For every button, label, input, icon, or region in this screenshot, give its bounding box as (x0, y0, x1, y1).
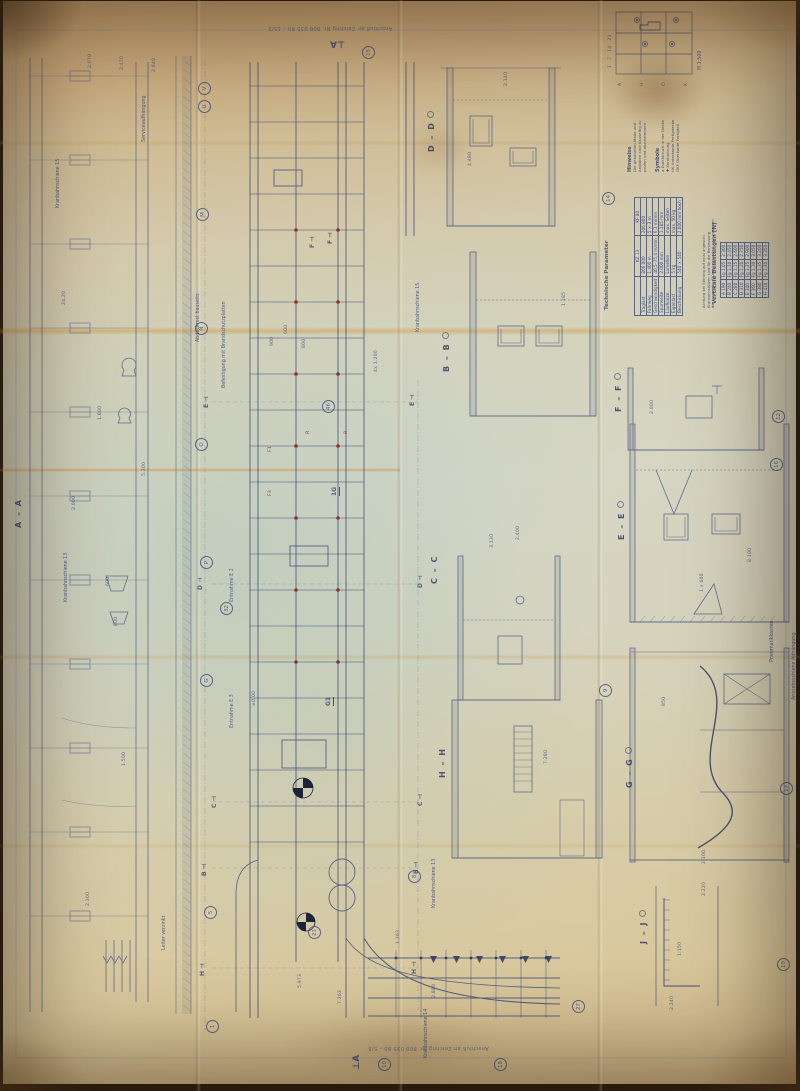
table-cell: 2.750 (739, 242, 745, 259)
hinweise-lines: Die genannten Maße undAngaben sind bause… (633, 124, 648, 172)
row: A 190Fg 1,052.300 (721, 242, 727, 297)
symbole-block: Symbole ⌀ Durchbruch in der Decke✚ Kernb… (654, 124, 682, 172)
photographed-blueprint: A – AD – DB – BC – CH – HF – FE – EG – G… (0, 0, 800, 1091)
table-cell: Beschickung (677, 276, 683, 315)
key-plan-numbers: 1 7 14 21 (608, 34, 613, 68)
linework (336, 516, 340, 520)
table-cell: 2.450 (727, 242, 733, 259)
linework (294, 660, 298, 664)
row: C 280Fg 1,152.600 (733, 242, 739, 297)
table-cell: 2.600 (733, 242, 739, 259)
linework (294, 444, 298, 448)
linework (395, 957, 398, 960)
linework (336, 300, 340, 304)
load-table-box: A 190Fg 1,052.300B 240Fg 1,102.450C 280F… (720, 232, 782, 298)
table-cell: Fg 1,30 (751, 259, 757, 280)
table-cell: Fg 1,05 (721, 259, 727, 280)
linework (294, 588, 298, 592)
linework (420, 957, 423, 960)
row: B 240Fg 1,102.450 (727, 242, 733, 297)
table-cell: E 340 (745, 280, 751, 298)
table-cell: Fg 1,25 (745, 259, 751, 280)
linework (294, 372, 298, 376)
linework (336, 372, 340, 376)
row: LaufkatzeLamellenmax. Seiten (665, 198, 671, 316)
row: Fahrweg1.400 m5 × 3 m (647, 198, 653, 316)
table-cell: 3.050 (751, 242, 757, 259)
row: F 360Fg 1,303.050 (751, 242, 757, 297)
row: Spurweite2.000 mm1.185 mm (659, 198, 665, 316)
linework (470, 957, 473, 960)
table-cell: D 310 (739, 280, 745, 298)
table-cell: 2.000 mm hoch (677, 198, 683, 236)
table-cell: F 360 (751, 280, 757, 298)
table-cell: Fg 1,10 (727, 259, 733, 280)
linework (760, 616, 765, 622)
table-cell: Fg 1,20 (739, 259, 745, 280)
linework (740, 616, 745, 622)
hinweise-block: Hinweise Die genannten Maße undAngaben s… (626, 124, 654, 172)
plan-strip (205, 60, 560, 1030)
row: D 310Fg 1,202.750 (739, 242, 745, 297)
linework (294, 300, 298, 304)
linework (770, 616, 775, 622)
linework (430, 956, 437, 963)
linework (336, 228, 340, 232)
vertical-loads-table: A 190Fg 1,052.300B 240Fg 1,102.450C 280F… (720, 242, 769, 298)
linework (750, 616, 755, 622)
table-cell: C 280 (733, 280, 739, 298)
symbole-item: OKF Oberkante Fertigteil (676, 124, 681, 172)
linework (670, 616, 675, 622)
symbole-items: ⌀ Durchbruch in der Decke✚ KernbohrungUK… (661, 124, 681, 172)
linework (499, 956, 506, 963)
connection-note-bottom: Anschluß an Zeichng Nr. 800 035 80 – 5/8 (368, 1044, 489, 1050)
table-cell: 3.350 (763, 242, 769, 259)
table-cell: 540 × 540 (677, 236, 683, 276)
row: H 410Fg 1,403.350 (763, 242, 769, 297)
linework (710, 616, 715, 622)
cross-sections (441, 68, 789, 1006)
linework (495, 957, 498, 960)
table-cell: H 410 (763, 280, 769, 298)
table-cell: 2.900 (745, 242, 751, 259)
load-table-note-lines: Achtung bei Störung auf axial angeschl.K… (702, 232, 716, 308)
table-cell: Fg 1,40 (763, 259, 769, 280)
row: Geschwindigkeit40,5–75,4 m/min6,3 m/min (653, 198, 659, 316)
table-cell: 3.200 (757, 242, 763, 259)
key-plan-grid (616, 12, 692, 74)
table-cell: Fg 1,15 (733, 259, 739, 280)
linework (650, 616, 655, 622)
linework (336, 444, 340, 448)
linework (700, 616, 705, 622)
row: Traglast866 000206 800 (641, 198, 647, 316)
row: Beschickung540 × 5402.000 mm hoch (677, 198, 683, 316)
linework (476, 956, 483, 963)
parameter-table-body: Traglast866 000206 800Fahrweg1.400 m5 × … (641, 198, 683, 316)
linework (640, 616, 645, 622)
linework (690, 616, 695, 622)
linework (453, 956, 460, 963)
hinweise-line: prüfen und abzustimmen (643, 124, 648, 172)
parameter-table-title: Technische Parameter (604, 240, 610, 310)
elevation-A-A (30, 56, 191, 1014)
table-cell: 40,5–75,4 m/min (653, 236, 659, 276)
linework (660, 616, 665, 622)
table-cell: A 190 (721, 280, 727, 298)
sheet-frame (16, 30, 786, 1058)
linework (294, 516, 298, 520)
linework (520, 957, 523, 960)
linework (720, 616, 725, 622)
linework (294, 228, 298, 232)
load-table-note-line: Achtung bei Störung auf axial angeschl. (702, 232, 707, 308)
connection-note-top: Anschluß an Zeichng Nr. 800 035 80 – 15/… (268, 24, 392, 30)
row: G 380Fg 1,353.200 (757, 242, 763, 297)
linework (445, 957, 448, 960)
linework (522, 956, 529, 963)
table-cell: G 380 (757, 280, 763, 298)
load-table-note: Achtung bei Störung auf axial angeschl.K… (702, 232, 716, 308)
linework (730, 616, 735, 622)
table-cell: Geschwindigkeit (653, 276, 659, 315)
row: E 340Fg 1,252.900 (745, 242, 751, 297)
load-table-body: A 190Fg 1,052.300B 240Fg 1,102.450C 280F… (721, 242, 769, 297)
linework (680, 616, 685, 622)
load-table-note-line: der tragenden Stützen gesondert nachzuwe… (711, 232, 716, 308)
linework (336, 588, 340, 592)
linework (336, 660, 340, 664)
table-cell: B 240 (727, 280, 733, 298)
table-cell: 2.300 (721, 242, 727, 259)
technical-parameters-table: KZ 13KF 80 Traglast866 000206 800Fahrweg… (634, 197, 683, 316)
table-cell: Fg 1,35 (757, 259, 763, 280)
